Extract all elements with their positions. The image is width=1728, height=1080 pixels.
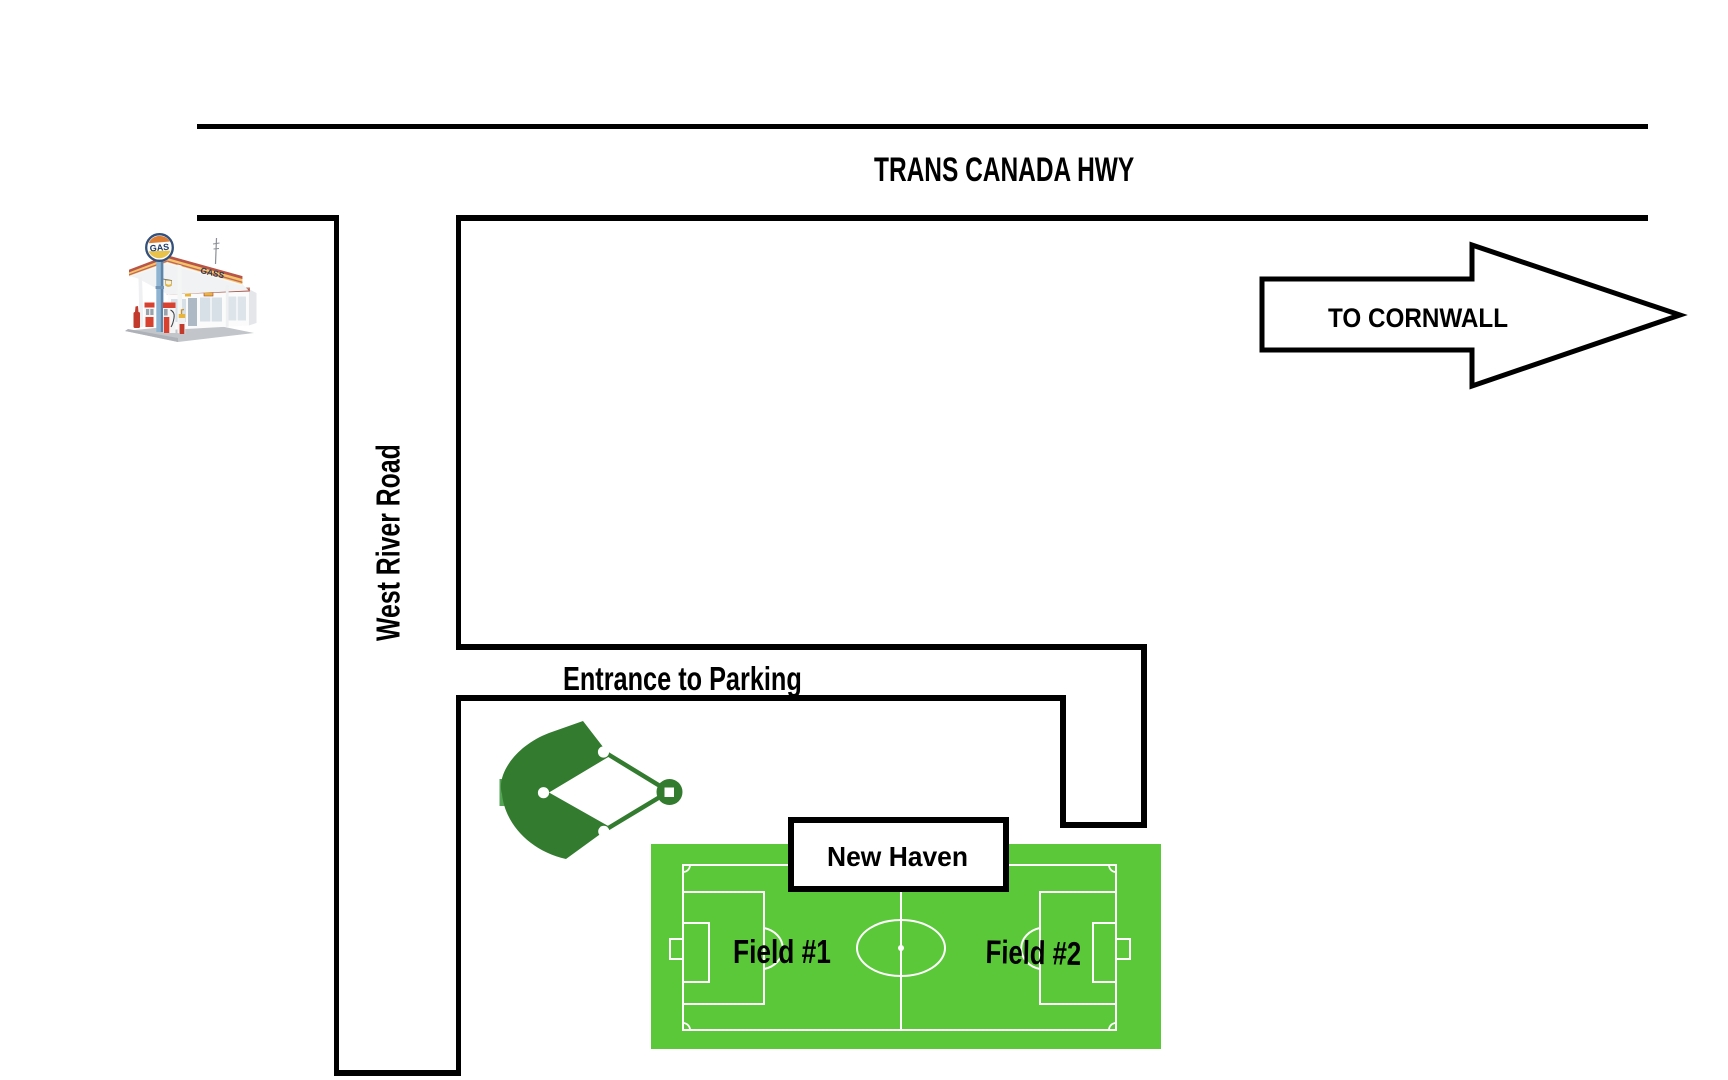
svg-text:GAS: GAS <box>149 242 169 254</box>
